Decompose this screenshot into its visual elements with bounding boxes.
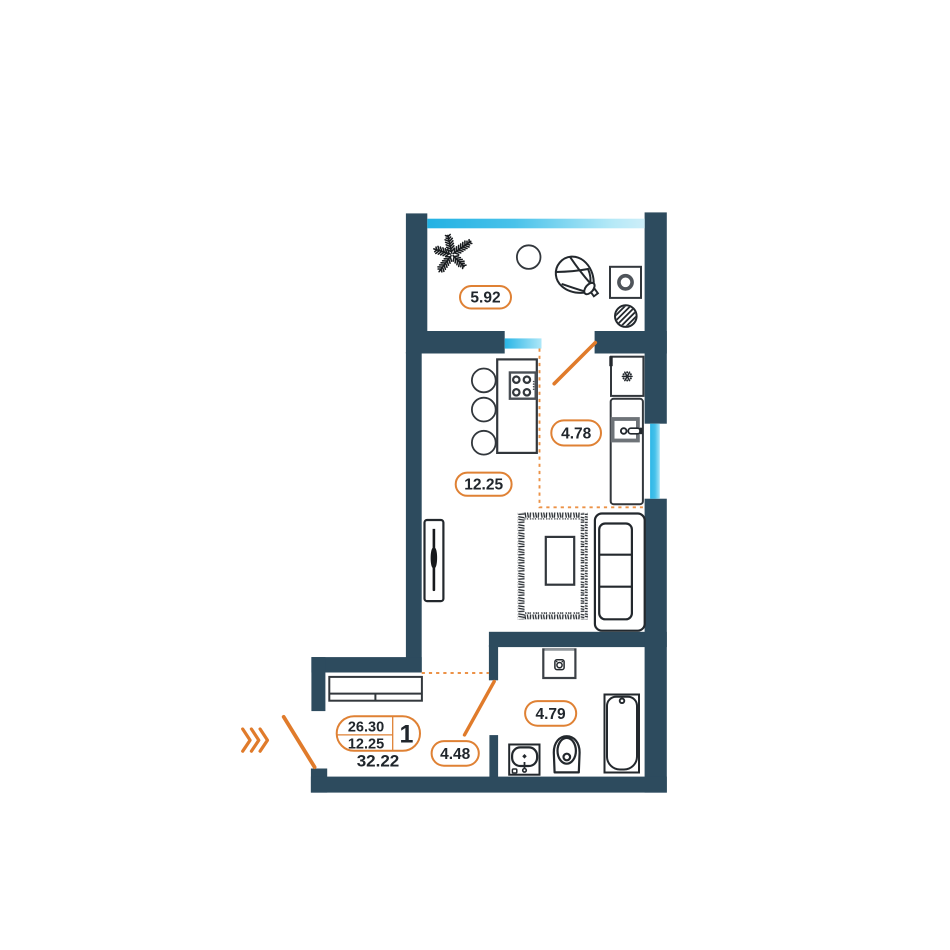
svg-text:4.78: 4.78: [561, 426, 592, 443]
svg-text:5.92: 5.92: [470, 290, 500, 307]
svg-text:4.79: 4.79: [536, 706, 567, 723]
svg-text:12.25: 12.25: [348, 736, 384, 752]
svg-text:32.22: 32.22: [357, 752, 400, 771]
svg-text:1: 1: [399, 721, 413, 749]
svg-text:12.25: 12.25: [464, 477, 503, 494]
svg-text:4.48: 4.48: [440, 746, 471, 763]
svg-text:26.30: 26.30: [348, 720, 384, 736]
